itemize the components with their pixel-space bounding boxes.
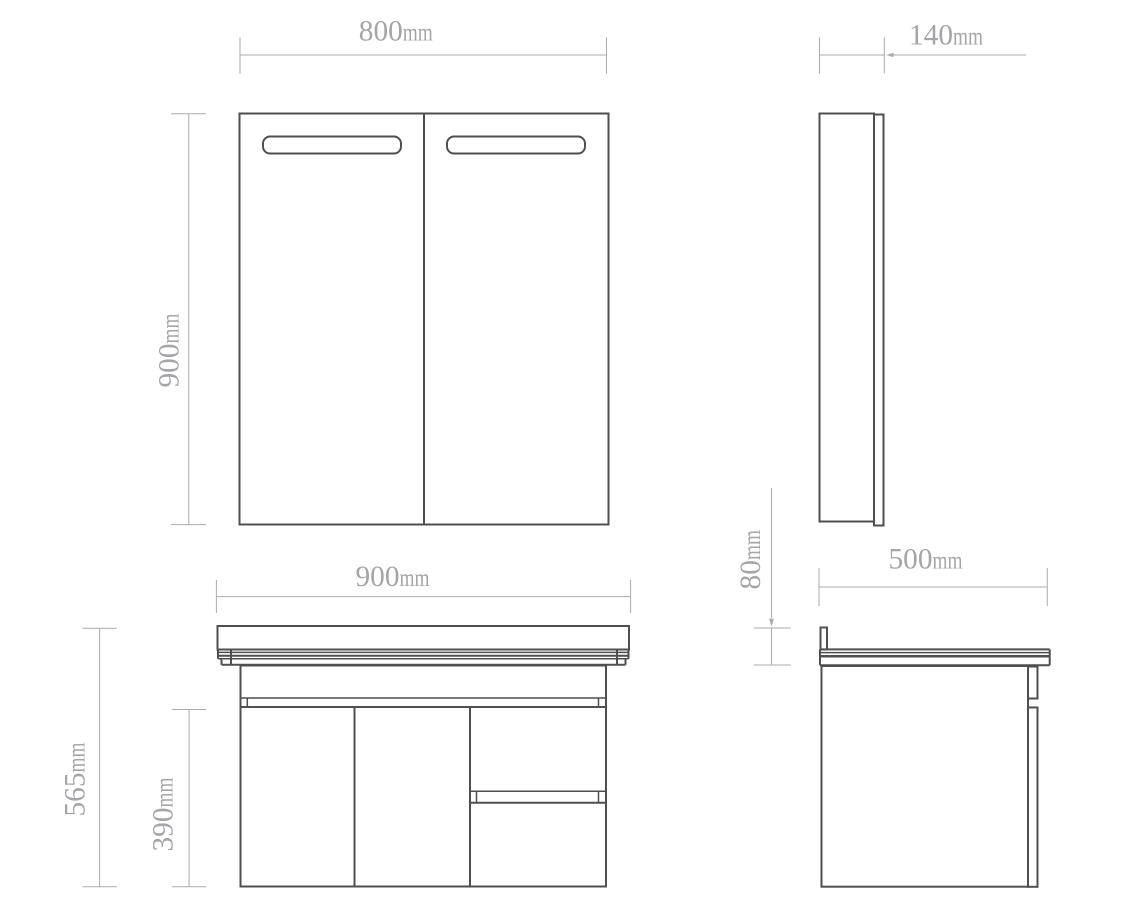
svg-text:900mm: 900mm [356, 561, 430, 593]
svg-text:390mm: 390mm [148, 777, 180, 851]
svg-text:140mm: 140mm [909, 20, 983, 52]
svg-text:565mm: 565mm [60, 742, 92, 816]
svg-text:800mm: 800mm [359, 16, 433, 48]
svg-text:900mm: 900mm [154, 313, 186, 387]
svg-text:500mm: 500mm [889, 544, 963, 576]
svg-text:80mm: 80mm [735, 530, 767, 590]
